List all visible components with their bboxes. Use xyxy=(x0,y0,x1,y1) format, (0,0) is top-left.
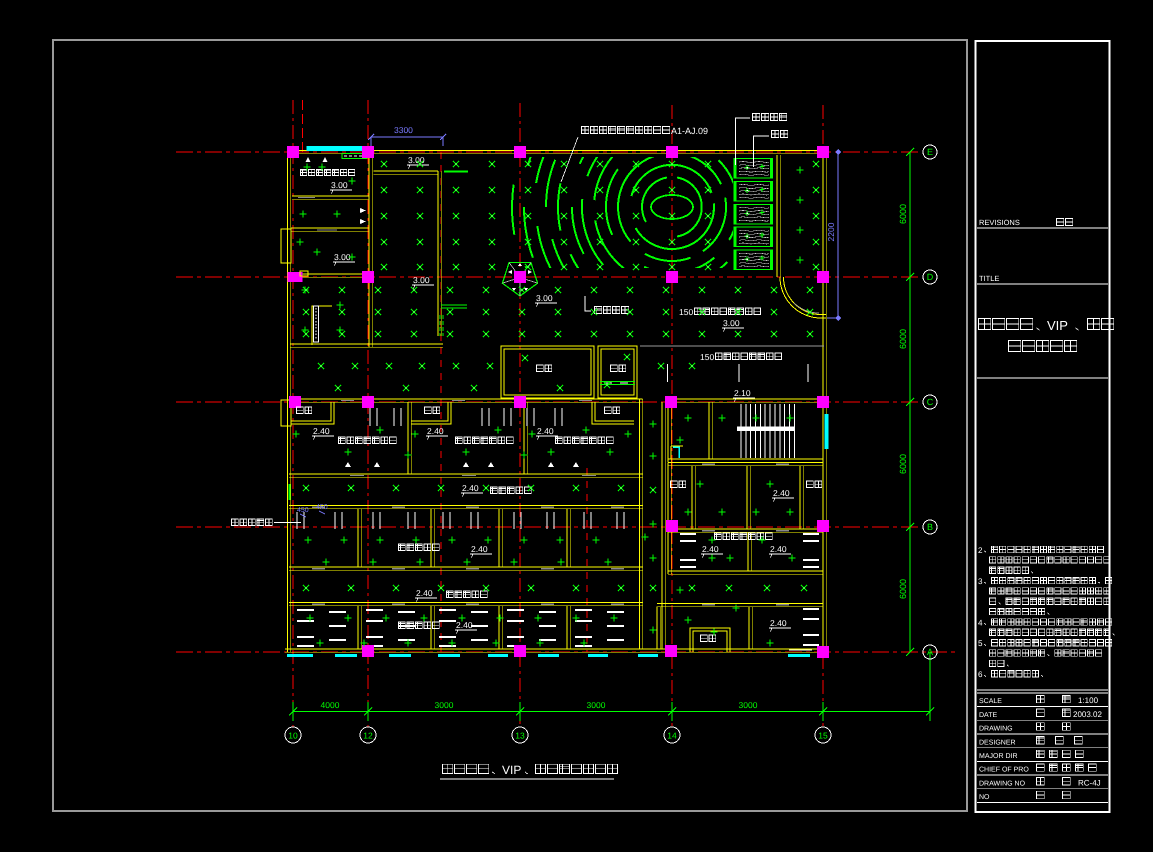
svg-text:6000: 6000 xyxy=(898,454,908,474)
svg-text:2.40: 2.40 xyxy=(537,426,554,436)
svg-text:450: 450 xyxy=(316,504,328,511)
svg-text:3.00: 3.00 xyxy=(408,155,425,165)
svg-text:2.40: 2.40 xyxy=(770,544,787,554)
svg-text:150: 150 xyxy=(679,307,693,317)
svg-text:3: 3 xyxy=(978,577,983,586)
svg-text:DRAWING: DRAWING xyxy=(979,726,1013,733)
svg-text:150: 150 xyxy=(700,352,714,362)
svg-text:3.00: 3.00 xyxy=(334,252,351,262)
svg-text:4000: 4000 xyxy=(321,700,340,710)
svg-text:2.40: 2.40 xyxy=(456,620,473,630)
svg-text:REVISIONS: REVISIONS xyxy=(979,218,1020,227)
svg-text:2.40: 2.40 xyxy=(773,488,790,498)
svg-text:B: B xyxy=(927,522,933,532)
svg-text:NO: NO xyxy=(979,794,990,801)
svg-text:2.40: 2.40 xyxy=(462,483,479,493)
svg-text:A: A xyxy=(927,647,933,657)
svg-text:RC-4J: RC-4J xyxy=(1078,778,1101,787)
svg-text:DRAWING NO: DRAWING NO xyxy=(979,780,1026,787)
svg-text:15: 15 xyxy=(818,731,828,741)
svg-text:VIP: VIP xyxy=(1047,318,1068,333)
svg-text:2200: 2200 xyxy=(826,222,836,241)
svg-text:6000: 6000 xyxy=(898,329,908,349)
svg-text:2: 2 xyxy=(978,546,983,555)
svg-text:3000: 3000 xyxy=(435,700,454,710)
svg-text:2.10: 2.10 xyxy=(734,388,751,398)
svg-text:3.00: 3.00 xyxy=(536,293,553,303)
svg-text:1:100: 1:100 xyxy=(1078,696,1099,705)
svg-text:E: E xyxy=(927,147,933,157)
svg-text:3300: 3300 xyxy=(394,125,413,135)
svg-text:6000: 6000 xyxy=(898,579,908,599)
svg-text:10: 10 xyxy=(288,731,298,741)
svg-text:3.00: 3.00 xyxy=(413,275,430,285)
svg-text:13: 13 xyxy=(515,731,525,741)
svg-text:12: 12 xyxy=(363,731,373,741)
svg-text:2003.02: 2003.02 xyxy=(1073,710,1102,719)
svg-text:TITLE: TITLE xyxy=(979,274,999,283)
svg-text:D: D xyxy=(927,272,934,282)
svg-text:2.40: 2.40 xyxy=(313,426,330,436)
svg-text:3000: 3000 xyxy=(739,700,758,710)
svg-text:2.40: 2.40 xyxy=(471,544,488,554)
svg-text:DESIGNER: DESIGNER xyxy=(979,739,1016,746)
svg-text:6: 6 xyxy=(978,670,983,679)
svg-text:A1-AJ.09: A1-AJ.09 xyxy=(671,126,708,136)
svg-text:CHIEF OF PRO: CHIEF OF PRO xyxy=(979,767,1029,774)
svg-text:2.40: 2.40 xyxy=(770,618,787,628)
svg-text:C: C xyxy=(927,397,934,407)
svg-text:VIP: VIP xyxy=(502,763,521,777)
svg-text:3.00: 3.00 xyxy=(331,180,348,190)
svg-text:DATE: DATE xyxy=(979,712,997,719)
svg-text:2.40: 2.40 xyxy=(416,588,433,598)
svg-text:14: 14 xyxy=(667,731,677,741)
svg-text:6000: 6000 xyxy=(898,204,908,224)
svg-text:SCALE: SCALE xyxy=(979,698,1002,705)
svg-text:2.40: 2.40 xyxy=(702,544,719,554)
svg-text:MAJOR DIR: MAJOR DIR xyxy=(979,753,1018,760)
svg-text:3.00: 3.00 xyxy=(723,318,740,328)
svg-text:2.40: 2.40 xyxy=(427,426,444,436)
svg-text:3000: 3000 xyxy=(587,700,606,710)
svg-text:5: 5 xyxy=(978,639,983,648)
svg-text:4: 4 xyxy=(978,618,983,627)
svg-text:450: 450 xyxy=(297,507,309,514)
